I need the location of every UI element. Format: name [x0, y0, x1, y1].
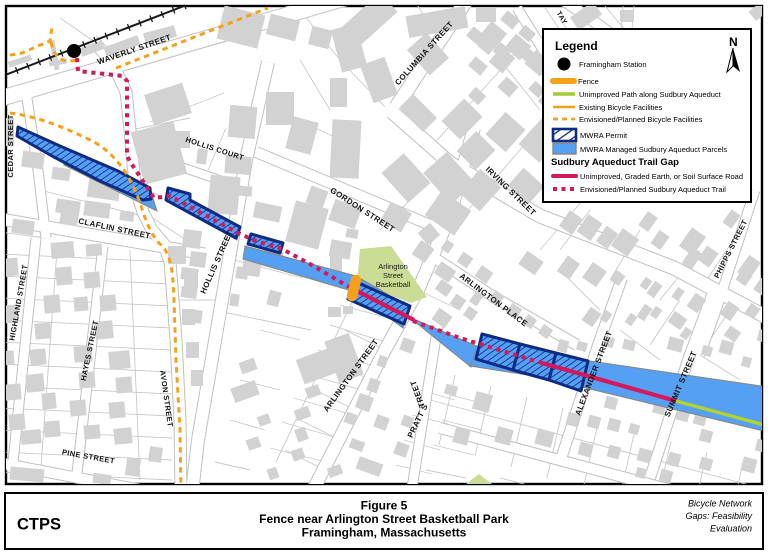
svg-text:MWRA Permit: MWRA Permit	[580, 131, 628, 140]
svg-text:Basketball: Basketball	[376, 280, 411, 289]
svg-text:Evaluation: Evaluation	[710, 524, 752, 534]
svg-text:MWRA Managed Sudbury Aqueduct: MWRA Managed Sudbury Aqueduct Parcels	[580, 145, 727, 154]
svg-text:Envisioned/Planned Bicycle Fac: Envisioned/Planned Bicycle Facilities	[579, 115, 703, 124]
svg-text:Arlington: Arlington	[378, 262, 408, 271]
svg-text:Legend: Legend	[555, 39, 598, 53]
svg-text:Existing Bicycle Facilities: Existing Bicycle Facilities	[579, 103, 663, 112]
svg-text:Sudbury Aqueduct Trail Gap: Sudbury Aqueduct Trail Gap	[551, 157, 679, 168]
svg-text:Unimproved, Graded Earth, or S: Unimproved, Graded Earth, or Soil Surfac…	[580, 172, 743, 181]
svg-text:Envisioned/Planned Sudbury Aqu: Envisioned/Planned Sudbury Aqueduct Trai…	[580, 185, 726, 194]
svg-text:Bicycle Network: Bicycle Network	[688, 499, 753, 509]
svg-text:Framingham Station: Framingham Station	[579, 60, 647, 69]
svg-text:N: N	[729, 35, 738, 49]
svg-text:Unimproved Path along Sudbury: Unimproved Path along Sudbury Aqueduct	[579, 90, 722, 99]
svg-text:Street: Street	[383, 271, 404, 280]
svg-text:CTPS: CTPS	[17, 516, 61, 534]
svg-text:CEDAR STREET: CEDAR STREET	[6, 114, 15, 177]
svg-text:Framingham, Massachusetts: Framingham, Massachusetts	[302, 526, 467, 540]
svg-text:Figure 5: Figure 5	[361, 499, 408, 513]
svg-text:Fence near Arlington Street Ba: Fence near Arlington Street Basketball P…	[259, 512, 509, 526]
svg-text:Fence: Fence	[578, 77, 599, 86]
svg-text:Gaps: Feasibility: Gaps: Feasibility	[685, 511, 752, 521]
